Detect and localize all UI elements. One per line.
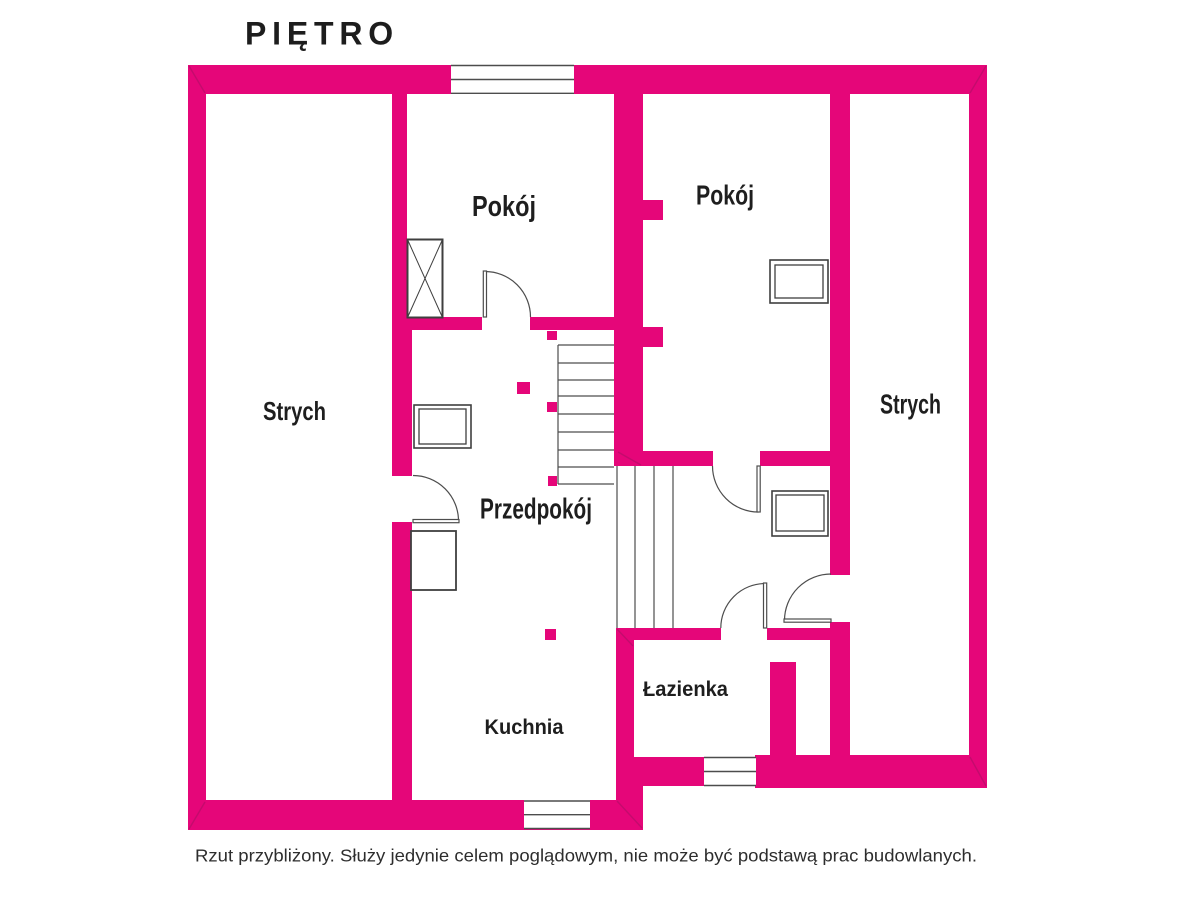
svg-text:Kuchnia: Kuchnia	[485, 716, 564, 739]
svg-text:Przedpokój: Przedpokój	[480, 494, 592, 526]
svg-text:Pokój: Pokój	[696, 180, 754, 211]
svg-text:Strych: Strych	[880, 389, 941, 420]
svg-text:Rzut przybliżony. Służy jedyni: Rzut przybliżony. Służy jedynie celem po…	[195, 846, 977, 866]
svg-text:PIĘTRO: PIĘTRO	[245, 16, 399, 52]
svg-text:Łazienka: Łazienka	[643, 677, 729, 701]
svg-text:Pokój: Pokój	[472, 191, 536, 223]
svg-text:Strych: Strych	[263, 396, 326, 426]
